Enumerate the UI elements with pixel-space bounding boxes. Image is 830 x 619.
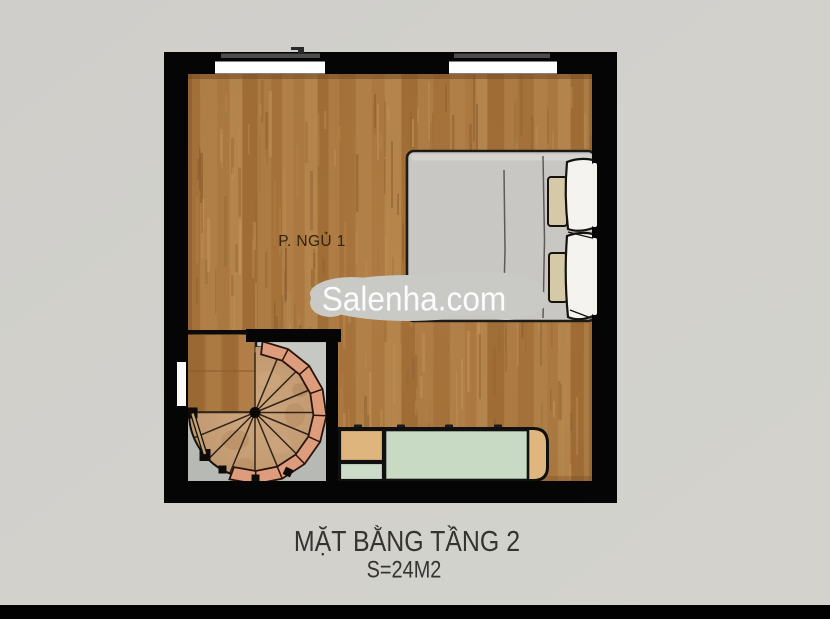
svg-text:P. NGỦ 1: P. NGỦ 1 (278, 232, 346, 250)
svg-text:Salenha.com: Salenha.com (322, 279, 507, 317)
svg-text:MẶT BẰNG TẦNG 2: MẶT BẰNG TẦNG 2 (294, 524, 520, 557)
svg-text:S=24M2: S=24M2 (367, 556, 442, 583)
